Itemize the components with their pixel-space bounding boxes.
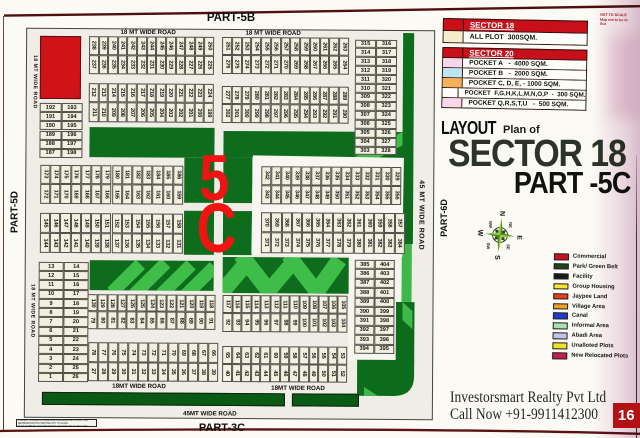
svg-text:NE: NE: [508, 222, 513, 228]
svg-text:SE: SE: [506, 244, 511, 250]
svg-text:SW: SW: [486, 242, 491, 249]
svg-text:E: E: [515, 235, 522, 240]
svg-text:NW: NW: [488, 221, 493, 228]
svg-text:S: S: [493, 255, 500, 260]
svg-text:N: N: [498, 211, 505, 216]
svg-text:W: W: [478, 230, 483, 237]
